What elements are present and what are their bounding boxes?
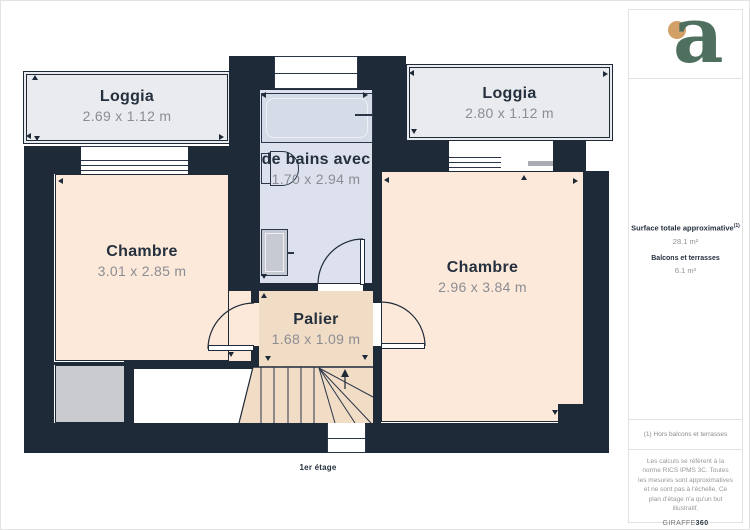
wall	[366, 423, 609, 453]
corner-arrow-icon	[521, 175, 527, 180]
logo-letter: a	[673, 0, 724, 75]
wall	[584, 171, 609, 423]
room-label-bedroom-right: Chambre 2.96 x 3.84 m	[381, 257, 584, 297]
room-name: Chambre	[55, 241, 229, 262]
bathroom-door-arc-icon	[318, 239, 363, 284]
room-label-landing: Palier 1.68 x 1.09 m	[251, 309, 381, 349]
surface-info-section: Surface totale approximative(1) 28.1 m² …	[629, 79, 742, 420]
wall	[24, 146, 54, 453]
room-name: Loggia	[406, 83, 613, 104]
wall	[259, 284, 318, 291]
loggia-door-opening	[501, 141, 553, 171]
corner-arrow-icon	[265, 356, 271, 361]
window-divider	[275, 57, 357, 88]
closet-area	[55, 365, 125, 423]
room-name: Palier	[251, 309, 381, 330]
wall	[188, 146, 229, 174]
bathroom-door-leaf	[360, 239, 365, 285]
room-dimensions: 1.70 x 2.94 m	[246, 170, 386, 189]
wall	[358, 56, 406, 89]
brand-prefix: GIRAFFE	[662, 520, 695, 527]
sink-inner	[265, 233, 284, 272]
brand-suffix: 360	[696, 520, 709, 527]
sink-icon	[261, 229, 288, 276]
wall	[373, 171, 381, 303]
wall	[24, 423, 327, 453]
corner-arrow-icon	[411, 129, 417, 134]
corner-arrow-icon	[384, 177, 389, 183]
window-glazing-lines	[81, 160, 188, 173]
corner-arrow-icon	[219, 134, 224, 140]
room-dimensions: 3.01 x 2.85 m	[55, 262, 229, 281]
legal-disclaimer: Les calculs se réfèrent à la norme RICS …	[629, 450, 742, 522]
room-label-loggia-right: Loggia 2.80 x 1.12 m	[406, 83, 613, 123]
corner-arrow-icon	[573, 178, 578, 184]
room-label-bathroom: de bains avec 1.70 x 2.94 m	[246, 149, 386, 189]
window-glazing-lines	[449, 157, 501, 170]
corner-arrow-icon	[34, 136, 40, 141]
corner-arrow-icon	[409, 70, 414, 76]
room-dimensions: 2.80 x 1.12 m	[406, 104, 613, 123]
room-name: Chambre	[381, 257, 584, 278]
corner-arrow-icon	[58, 178, 63, 184]
wall	[54, 362, 125, 365]
window	[81, 146, 188, 174]
wall	[54, 146, 81, 174]
info-sidebar: a Surface totale approximative(1) 28.1 m…	[628, 9, 743, 523]
bathtub-tap-icon	[355, 114, 372, 116]
stairs	[237, 367, 381, 423]
room-label-bedroom-left: Chambre 3.01 x 2.85 m	[55, 241, 229, 281]
sliding-door-leaf	[528, 161, 553, 166]
bedroom-right-door-arc-icon	[381, 302, 425, 346]
bathtub-inner	[266, 98, 368, 138]
corner-arrow-icon	[363, 92, 368, 98]
bedroom-left-door-leaf	[208, 345, 254, 351]
bedroom-left-door-arc-icon	[208, 303, 254, 349]
sink-tap-icon	[287, 252, 294, 254]
wall	[381, 141, 449, 171]
window	[274, 56, 358, 89]
surface-total-value: 28.1 m²	[673, 237, 698, 246]
wall	[124, 369, 134, 423]
corner-arrow-icon	[362, 355, 368, 360]
corner-arrow-icon	[228, 352, 234, 357]
footnote: (1) Hors balcons et terrasses	[629, 420, 742, 450]
corner-arrow-icon	[261, 293, 267, 298]
wall	[251, 291, 259, 303]
corner-arrow-icon	[242, 179, 247, 185]
brand-logo: a	[629, 10, 742, 79]
bedroom-right-door-leaf	[381, 343, 425, 349]
bathtub-icon	[261, 93, 373, 143]
floor-label: 1er étage	[243, 463, 393, 472]
corner-arrow-icon	[26, 133, 31, 139]
wall	[259, 56, 274, 89]
corner-arrow-icon	[228, 176, 234, 181]
room-name: de bains avec	[246, 149, 386, 170]
corner-arrow-icon	[261, 92, 266, 98]
wall	[558, 404, 584, 423]
corner-arrow-icon	[32, 75, 38, 80]
wall	[553, 141, 586, 171]
surface-total-title: Surface totale approximative(1)	[631, 223, 740, 233]
legal-text: Les calculs se réfèrent à la norme RICS …	[638, 458, 733, 512]
room-dimensions: 2.96 x 3.84 m	[381, 278, 584, 297]
room-label-loggia-left: Loggia 2.69 x 1.12 m	[23, 86, 231, 126]
room-dimensions: 2.69 x 1.12 m	[23, 107, 231, 126]
room-name: Loggia	[23, 86, 231, 107]
corner-arrow-icon	[603, 71, 608, 77]
corner-arrow-icon	[552, 410, 558, 415]
window	[327, 422, 366, 453]
wall	[363, 284, 373, 291]
corner-arrow-icon	[261, 274, 267, 279]
surface-total-title-text: Surface totale approximative	[631, 224, 734, 233]
floorplan-page: Loggia 2.69 x 1.12 m Loggia 2.80 x 1.12 …	[0, 0, 750, 530]
surface-total-superscript: (1)	[734, 223, 740, 229]
balcony-title: Balcons et terrasses	[651, 255, 719, 262]
brand-name: GIRAFFE360	[638, 519, 733, 529]
room-dimensions: 1.68 x 1.09 m	[251, 330, 381, 349]
balcony-value: 6.1 m²	[675, 266, 696, 275]
window	[449, 141, 501, 171]
